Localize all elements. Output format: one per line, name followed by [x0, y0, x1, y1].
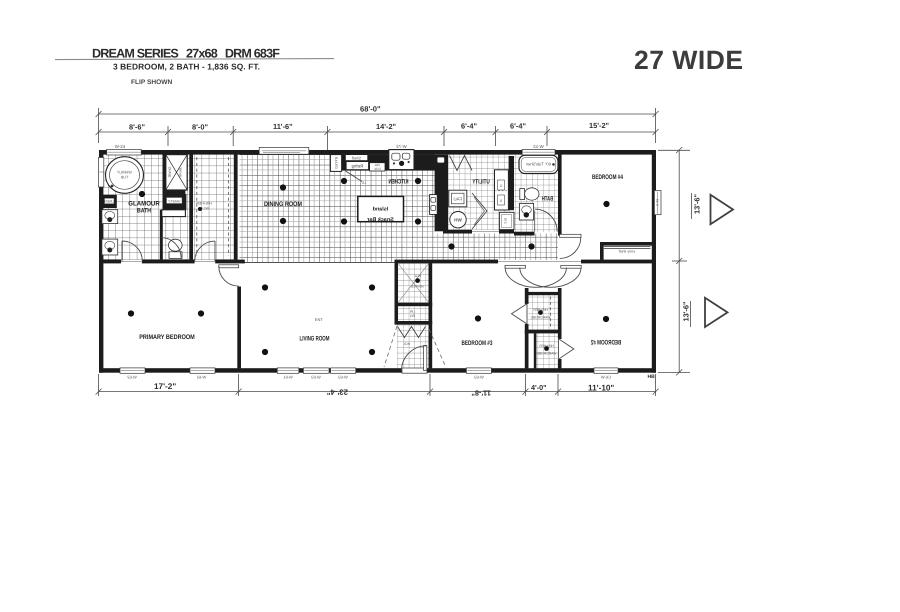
svg-text:BEDROOM #3: BEDROOM #3 [462, 340, 493, 347]
svg-text:HB: HB [648, 374, 656, 380]
svg-text:GLAMOUR: GLAMOUR [128, 201, 160, 208]
svg-text:60" Tub/Shwr: 60" Tub/Shwr [525, 161, 551, 166]
svg-text:6'-4": 6'-4" [510, 122, 526, 131]
svg-text:8'-6": 8'-6" [129, 123, 145, 132]
svg-text:13'-6": 13'-6" [693, 193, 702, 214]
svg-text:W-63: W-63 [337, 375, 347, 380]
svg-text:8'-0": 8'-0" [192, 123, 208, 132]
svg-text:Island: Island [373, 206, 389, 212]
svg-text:KITCHEN: KITCHEN [388, 179, 408, 186]
svg-text:17'-2": 17'-2" [154, 382, 176, 391]
svg-text:11'-8": 11'-8" [471, 389, 491, 398]
svg-text:UTILITY: UTILITY [472, 178, 490, 185]
svg-text:WARDROBE: WARDROBE [536, 351, 557, 355]
svg-text:DINING ROOM: DINING ROOM [264, 201, 302, 208]
svg-text:BEDROOM #2: BEDROOM #2 [591, 339, 622, 346]
svg-text:W-12: W-12 [533, 144, 544, 149]
svg-text:23'-4": 23'-4" [327, 388, 348, 397]
svg-text:LINEN: LINEN [104, 200, 115, 204]
svg-text:W.D.: W.D. [414, 274, 421, 278]
svg-text:G: G [499, 184, 502, 188]
svg-text:W-61: W-61 [282, 375, 292, 380]
svg-text:WHIRLP: WHIRLP [117, 171, 132, 175]
svg-text:W-24: W-24 [115, 144, 126, 149]
svg-text:B-2: B-2 [504, 218, 508, 223]
svg-text:C6-W: C6-W [601, 375, 611, 380]
svg-text:VENTED: VENTED [410, 285, 424, 289]
svg-text:A-72: A-72 [655, 199, 659, 206]
svg-text:D.W.: D.W. [374, 167, 381, 171]
svg-text:14'-2": 14'-2" [376, 122, 397, 131]
svg-text:ENT: ENT [315, 317, 324, 322]
svg-text:BEDROOM #4: BEDROOM #4 [592, 174, 623, 181]
svg-text:13'-6": 13'-6" [682, 301, 691, 322]
svg-text:entry shelf: entry shelf [619, 250, 636, 254]
svg-text:W-62: W-62 [126, 375, 136, 380]
svg-text:HIS+HER: HIS+HER [533, 308, 548, 312]
svg-text:W-62: W-62 [196, 375, 206, 380]
svg-text:WARDROBE: WARDROBE [530, 316, 551, 320]
svg-text:SHWR: SHWR [168, 167, 172, 178]
svg-text:15'-2": 15'-2" [589, 121, 610, 130]
svg-text:68'-0": 68'-0" [360, 105, 381, 114]
svg-text:HIS+HER: HIS+HER [539, 344, 554, 348]
svg-text:11'-6": 11'-6" [273, 122, 293, 131]
svg-text:4'-0": 4'-0" [531, 383, 547, 392]
svg-text:11'-10": 11'-10" [588, 384, 614, 393]
svg-text:VANITY: VANITY [167, 200, 180, 204]
svg-text:6'-4": 6'-4" [461, 122, 477, 131]
svg-text:HIS+HER: HIS+HER [196, 202, 212, 206]
svg-text:W.I.C.: W.I.C. [199, 207, 209, 211]
svg-text:EN: EN [410, 314, 415, 318]
svg-text:W-63: W-63 [473, 375, 483, 380]
svg-text:TUB: TUB [120, 176, 128, 180]
svg-text:B'FOLD: B'FOLD [335, 157, 339, 170]
svg-text:Snack Bar: Snack Bar [366, 217, 393, 223]
svg-text:LS: LS [361, 181, 366, 185]
svg-text:W-72: W-72 [396, 144, 407, 149]
svg-text:W.D.: W.D. [403, 342, 410, 346]
svg-text:36x48: 36x48 [179, 167, 183, 177]
svg-text:FAU: FAU [453, 197, 462, 202]
svg-text:HW: HW [454, 218, 462, 223]
svg-text:LIVING ROOM: LIVING ROOM [300, 335, 330, 342]
svg-text:Refrig: Refrig [351, 164, 363, 169]
svg-text:PRIMARY BEDROOM: PRIMARY BEDROOM [139, 334, 195, 341]
svg-text:W-63: W-63 [310, 375, 320, 380]
svg-text:3 BEDROOM, 2 BATH - 1,836 SQ.: 3 BEDROOM, 2 BATH - 1,836 SQ. FT. [113, 62, 260, 72]
svg-text:FLIP SHOWN: FLIP SHOWN [131, 79, 173, 86]
svg-text:Shelf: Shelf [351, 155, 361, 160]
svg-text:BATH: BATH [137, 208, 151, 215]
svg-text:BATH: BATH [542, 195, 554, 202]
svg-text:27 WIDE: 27 WIDE [634, 45, 744, 75]
